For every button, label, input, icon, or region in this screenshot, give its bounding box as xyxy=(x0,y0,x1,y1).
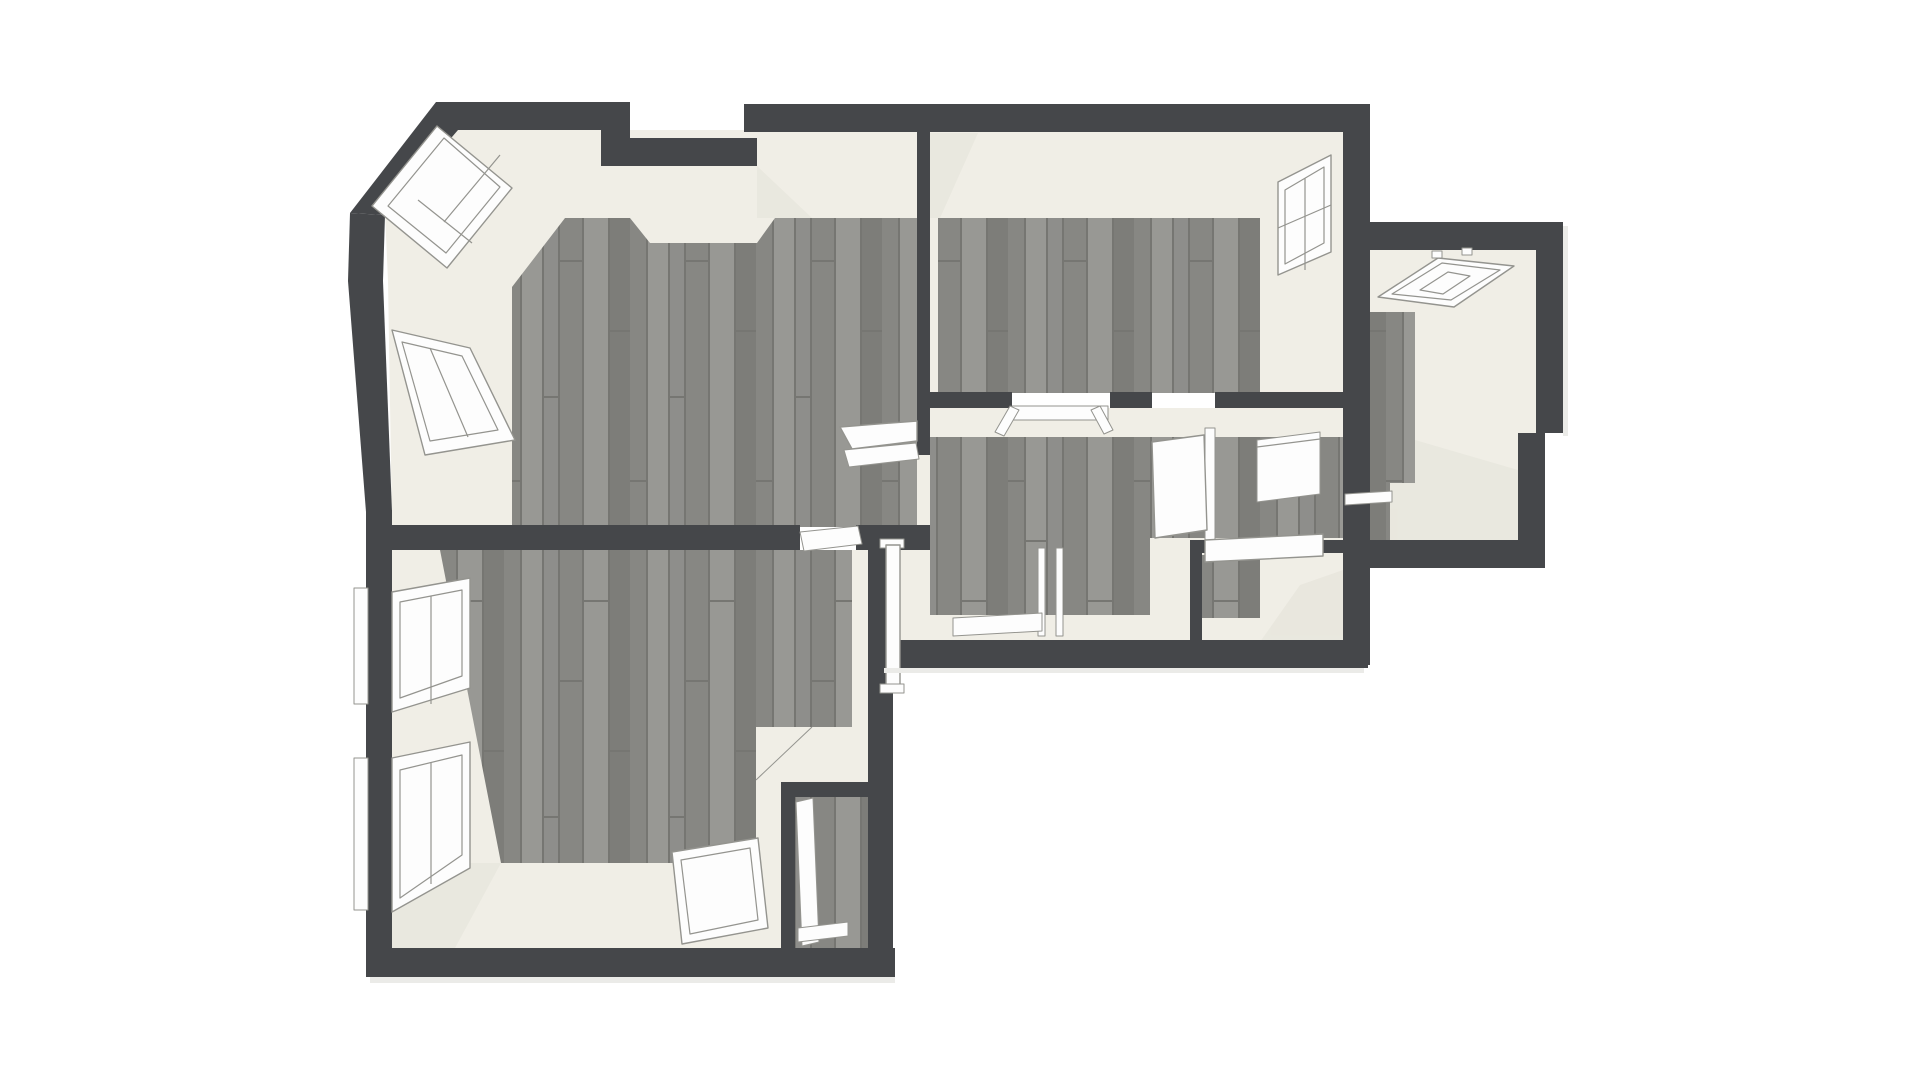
wall-bay-lower-diagonal xyxy=(348,281,392,512)
threshold-far-right xyxy=(1345,491,1392,505)
wall-bathroom-west xyxy=(1190,540,1202,642)
cap-vestibule-bottom xyxy=(880,684,904,693)
wall-hallway-north-c xyxy=(1215,392,1343,408)
floor-top-right-bedroom xyxy=(938,218,1260,393)
wall-top-notch-lower xyxy=(630,138,757,166)
wall-hallway-north-a xyxy=(930,392,1012,408)
floor-plan-canvas xyxy=(0,0,1920,1080)
loose-door-panel-floor xyxy=(672,838,768,944)
door-frame-vestibule-b xyxy=(1056,548,1063,636)
wall-attic-east-upper xyxy=(1536,222,1563,433)
wall-top-left xyxy=(436,102,630,130)
wall-hallway-north-b xyxy=(1110,392,1152,408)
floor-plan-stage xyxy=(0,0,1920,1080)
wall-living-south-left xyxy=(366,525,800,550)
wall-top-right xyxy=(744,104,1370,132)
open-door-leaf-hallway xyxy=(1152,435,1207,538)
wall-attic-east-lower xyxy=(1518,433,1545,540)
wall-top-notch-block xyxy=(601,102,630,166)
wall-bottom xyxy=(366,948,895,977)
threshold-living-south xyxy=(800,526,862,551)
shadow-attic-east xyxy=(1563,226,1568,436)
wall-east-outer xyxy=(1343,104,1370,665)
wall-bay-vertical xyxy=(348,213,385,281)
wall-attic-north xyxy=(1370,222,1563,250)
wall-attic-south xyxy=(1368,540,1545,568)
shadow-middle-south xyxy=(884,668,1364,673)
wall-separator-top-rooms xyxy=(917,130,930,455)
wall-niche-left xyxy=(781,782,795,948)
wall-west xyxy=(366,510,392,977)
wall-middle-south xyxy=(880,640,1368,668)
open-door-leaf-vestibule xyxy=(886,545,900,688)
floor-bathroom xyxy=(1202,555,1260,618)
floor-top-left-living xyxy=(512,218,917,527)
shadow-bottom xyxy=(370,977,895,983)
